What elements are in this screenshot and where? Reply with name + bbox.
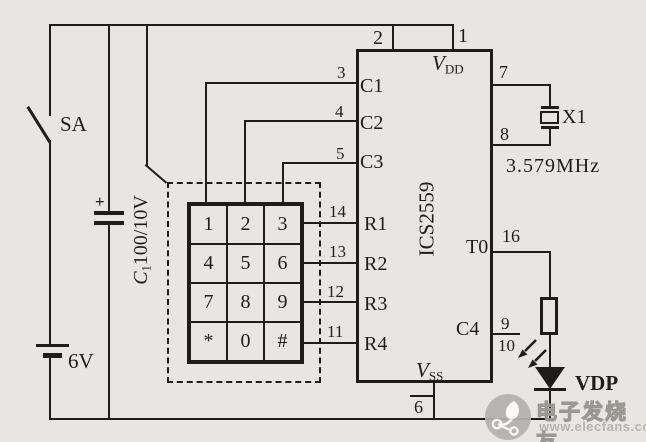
pin-8-number: 8 <box>500 125 509 143</box>
ic-r1-label: R1 <box>364 214 387 234</box>
vss-sub: SS <box>429 369 443 384</box>
ic-vss-label: VSS <box>416 360 443 383</box>
ic-c4-label: C4 <box>456 319 479 339</box>
capacitor-value: 100/10V <box>130 195 152 265</box>
pin-11-number: 11 <box>327 323 343 340</box>
wire-c3-v <box>282 162 284 203</box>
wire-pin7 <box>492 84 551 86</box>
key-3: 3 <box>264 205 301 244</box>
capacitor-ref: C <box>130 271 152 284</box>
wire-keypad-branch-diag <box>145 164 168 184</box>
key-7: 7 <box>190 283 227 322</box>
keypad-matrix: 1 2 3 4 5 6 7 8 9 * 0 # <box>187 202 304 364</box>
ic-r4-label: R4 <box>364 334 387 354</box>
wire-pin9-10-stub <box>493 333 520 335</box>
wire-pin1-stub <box>452 25 454 51</box>
wire-r1 <box>302 222 357 224</box>
pin-14-number: 14 <box>329 203 346 220</box>
capacitor-label: C1100/10V <box>131 195 153 285</box>
wire-c1-h <box>205 82 357 84</box>
wire-cap-lower <box>108 225 110 419</box>
pin-5-number: 5 <box>336 145 345 162</box>
key-9: 9 <box>264 283 301 322</box>
pin-10-number: 10 <box>498 337 515 354</box>
pin-16-number: 16 <box>502 227 520 245</box>
battery-label: 6V <box>68 351 94 372</box>
wire-resistor-led <box>549 335 551 368</box>
wire-pin2-stub <box>392 25 394 51</box>
capacitor-ref-sub: 1 <box>140 265 154 271</box>
ic-c2-label: C2 <box>360 113 383 133</box>
circuit-schematic: + C1100/10V SA 6V 1 2 3 4 5 6 7 8 9 * 0 … <box>0 0 646 442</box>
watermark-site-url: www.elecfans.com <box>539 419 646 434</box>
switch-blade <box>26 106 51 143</box>
vss-main: V <box>416 358 429 382</box>
ic-r3-label: R3 <box>364 294 387 314</box>
wire-left-rail-mid <box>49 140 51 345</box>
pin-6-number: 6 <box>414 398 423 416</box>
wire-left-rail-lower <box>49 358 51 420</box>
switch-label: SA <box>60 114 87 135</box>
resistor-body <box>540 297 558 335</box>
wire-pin16 <box>492 251 551 253</box>
ic-name: ICS2559 <box>417 182 438 257</box>
wire-pin8 <box>492 144 551 146</box>
pin-13-number: 13 <box>329 243 346 260</box>
pin-12-number: 12 <box>327 283 344 300</box>
key-hash: # <box>264 322 301 361</box>
key-6: 6 <box>264 244 301 283</box>
wire-cap-upper <box>108 24 110 212</box>
battery-plate-long <box>36 344 69 347</box>
wire-pin6-stub <box>433 383 435 419</box>
elecfans-logo-icon <box>485 394 531 440</box>
led-ref: VDP <box>575 373 618 394</box>
crystal-frequency: 3.579MHz <box>506 156 600 176</box>
key-8: 8 <box>227 283 264 322</box>
battery-plate-short <box>43 353 62 358</box>
wire-r4 <box>302 342 357 344</box>
pin-3-number: 3 <box>337 64 346 81</box>
key-5: 5 <box>227 244 264 283</box>
wire-t0-drop <box>549 251 551 297</box>
wire-left-rail-upper <box>49 24 51 116</box>
ic-vdd-label: VDD <box>432 53 464 76</box>
capacitor-polarity: + <box>95 193 105 210</box>
wire-c1-v <box>205 82 207 203</box>
wire-crystal-upper <box>549 84 551 108</box>
ic-r2-label: R2 <box>364 254 387 274</box>
pin-1-number: 1 <box>458 26 468 46</box>
ic-c1-label: C1 <box>360 76 383 96</box>
wire-c3-h <box>282 162 357 164</box>
pin-7-number: 7 <box>499 63 508 81</box>
key-0: 0 <box>227 322 264 361</box>
wire-r3 <box>302 301 357 303</box>
crystal-body <box>540 111 559 124</box>
pin-9-number: 9 <box>501 315 510 332</box>
wire-c2-v <box>244 120 246 203</box>
key-4: 4 <box>190 244 227 283</box>
vdd-sub: DD <box>445 62 464 77</box>
wire-crystal-lower <box>549 129 551 145</box>
vdd-main: V <box>432 51 445 75</box>
wire-r2 <box>302 262 357 264</box>
crystal-plate-top <box>541 106 559 109</box>
wire-keypad-branch <box>146 24 148 166</box>
ic-t0-label: T0 <box>466 237 488 257</box>
pin-4-number: 4 <box>335 103 344 120</box>
ic-c3-label: C3 <box>360 152 383 172</box>
capacitor-plate-top <box>94 211 124 215</box>
pin-2-number: 2 <box>373 28 383 48</box>
key-1: 1 <box>190 205 227 244</box>
wire-bottom-rail <box>49 418 551 420</box>
key-2: 2 <box>227 205 264 244</box>
key-star: * <box>190 322 227 361</box>
crystal-ref: X1 <box>562 107 586 127</box>
